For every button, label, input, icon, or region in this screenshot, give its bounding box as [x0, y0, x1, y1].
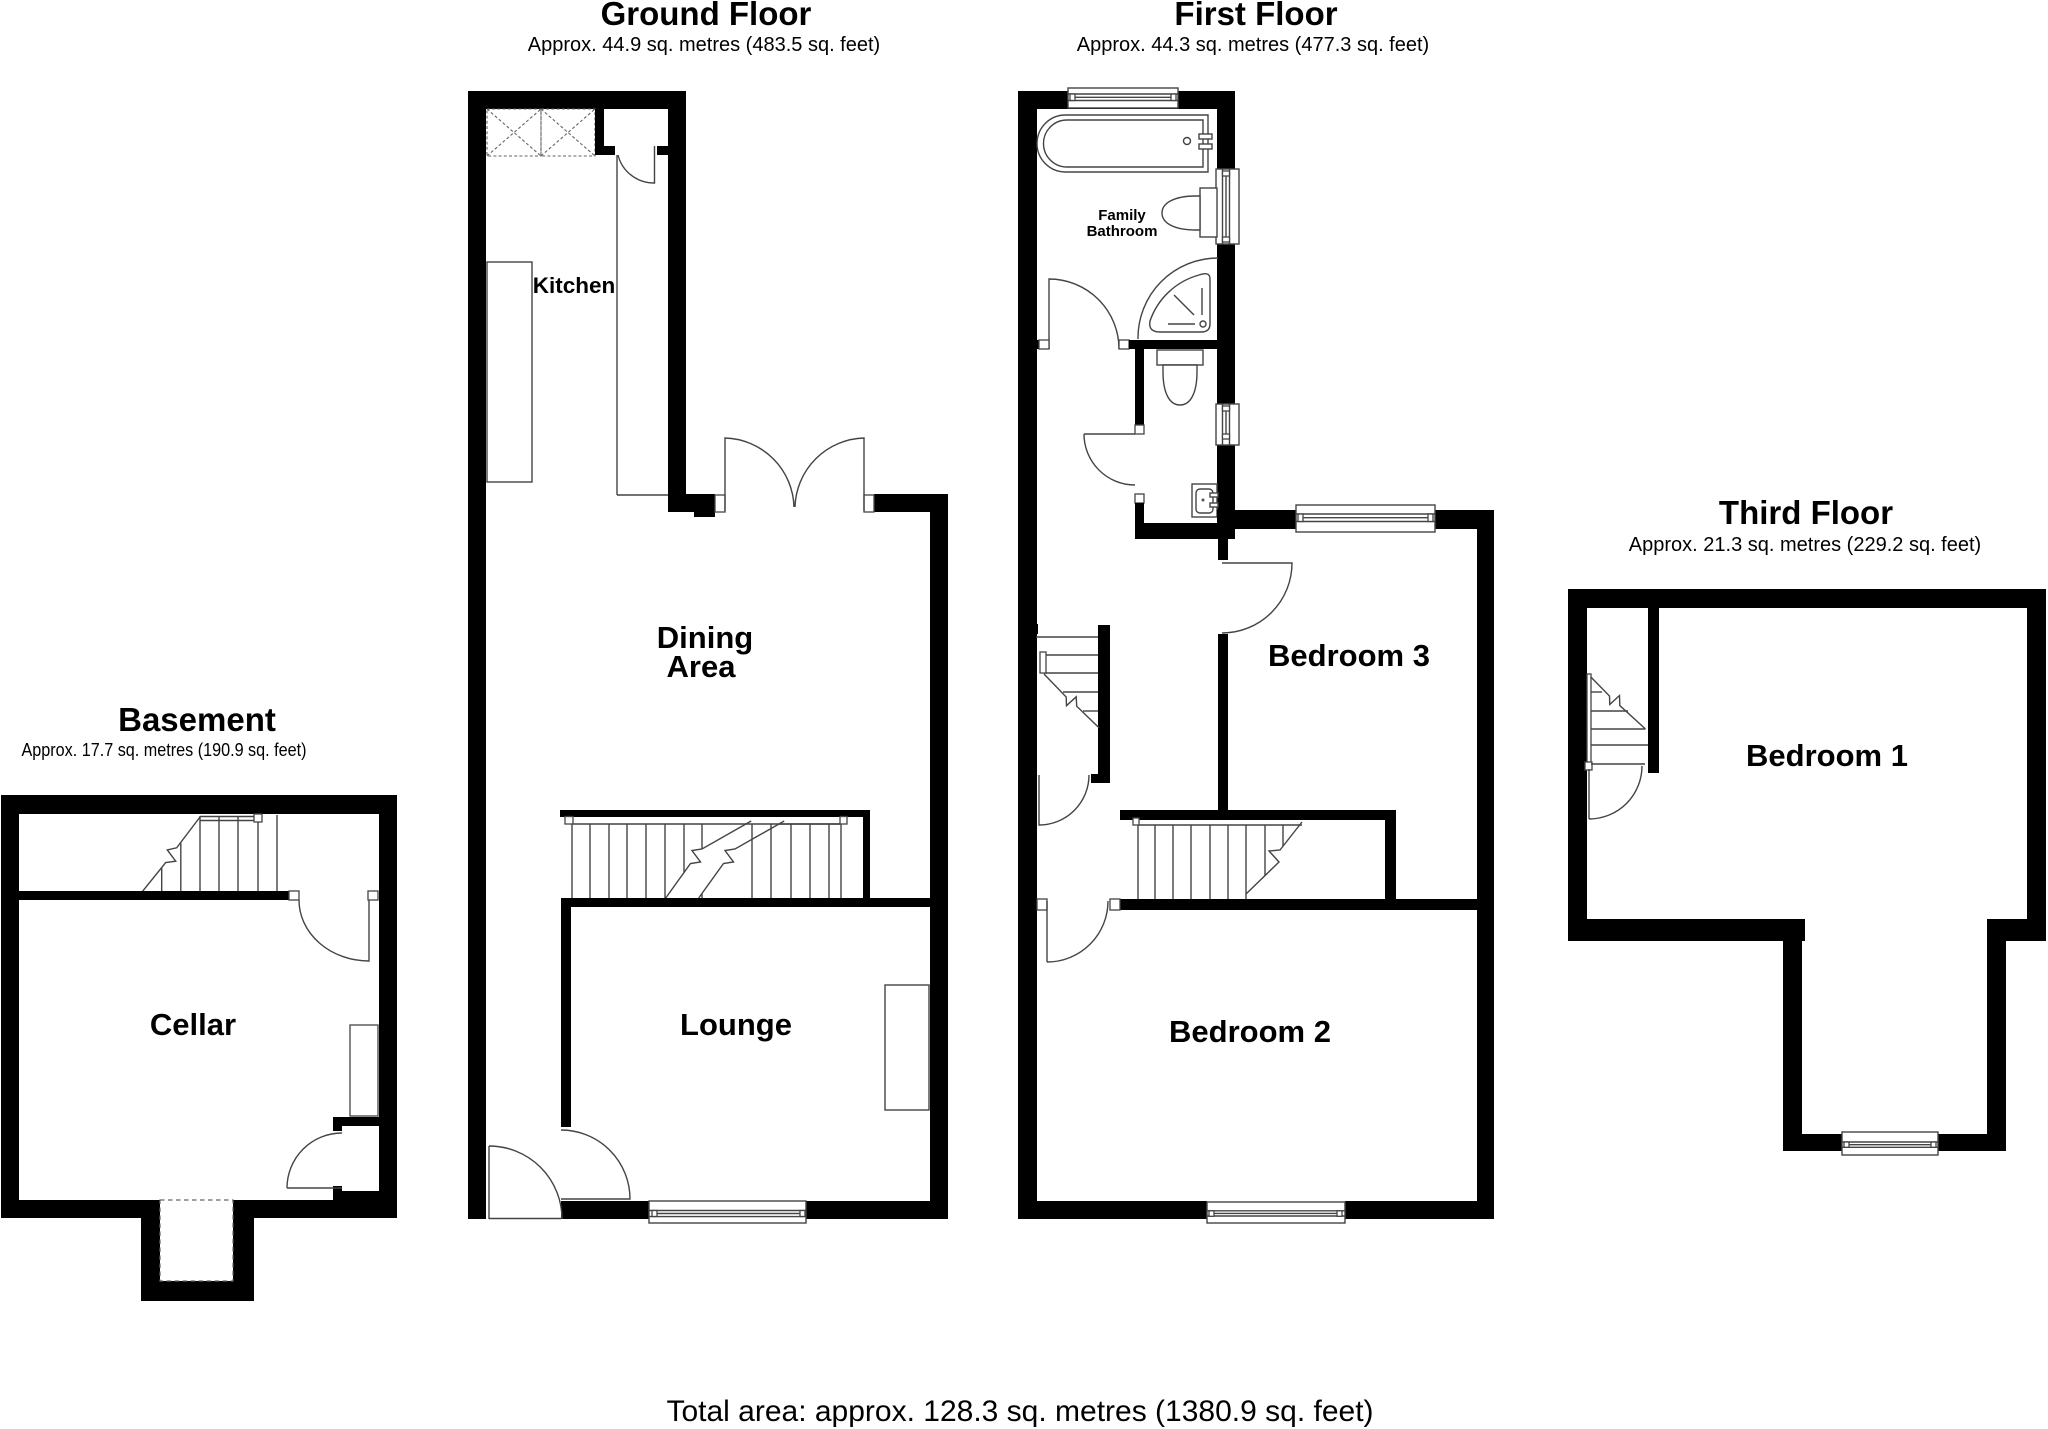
svg-text:Bathroom: Bathroom [1087, 223, 1158, 240]
svg-text:Approx. 44.9 sq. metres (483.5: Approx. 44.9 sq. metres (483.5 sq. feet) [528, 34, 880, 56]
svg-text:Approx. 21.3 sq. metres (229.2: Approx. 21.3 sq. metres (229.2 sq. feet) [1629, 534, 1981, 556]
svg-text:Total area: approx. 128.3 sq.: Total area: approx. 128.3 sq. metres (13… [666, 1395, 1373, 1428]
svg-text:Cellar: Cellar [150, 1007, 236, 1042]
svg-text:Approx. 44.3 sq. metres (477.3: Approx. 44.3 sq. metres (477.3 sq. feet) [1077, 34, 1429, 56]
svg-text:Approx. 17.7 sq. metres (190.9: Approx. 17.7 sq. metres (190.9 sq. feet) [22, 740, 307, 760]
svg-text:Bedroom 2: Bedroom 2 [1169, 1014, 1331, 1049]
svg-text:Ground Floor: Ground Floor [601, 0, 812, 32]
svg-text:Bedroom 3: Bedroom 3 [1268, 638, 1430, 673]
svg-text:First Floor: First Floor [1174, 0, 1337, 32]
svg-text:Third Floor: Third Floor [1719, 494, 1893, 531]
svg-text:Basement: Basement [118, 701, 276, 738]
svg-text:Family: Family [1098, 207, 1146, 224]
svg-text:Bedroom 1: Bedroom 1 [1746, 738, 1908, 773]
svg-text:Kitchen: Kitchen [533, 273, 616, 298]
svg-text:Area: Area [667, 649, 737, 684]
svg-text:Lounge: Lounge [680, 1007, 792, 1042]
